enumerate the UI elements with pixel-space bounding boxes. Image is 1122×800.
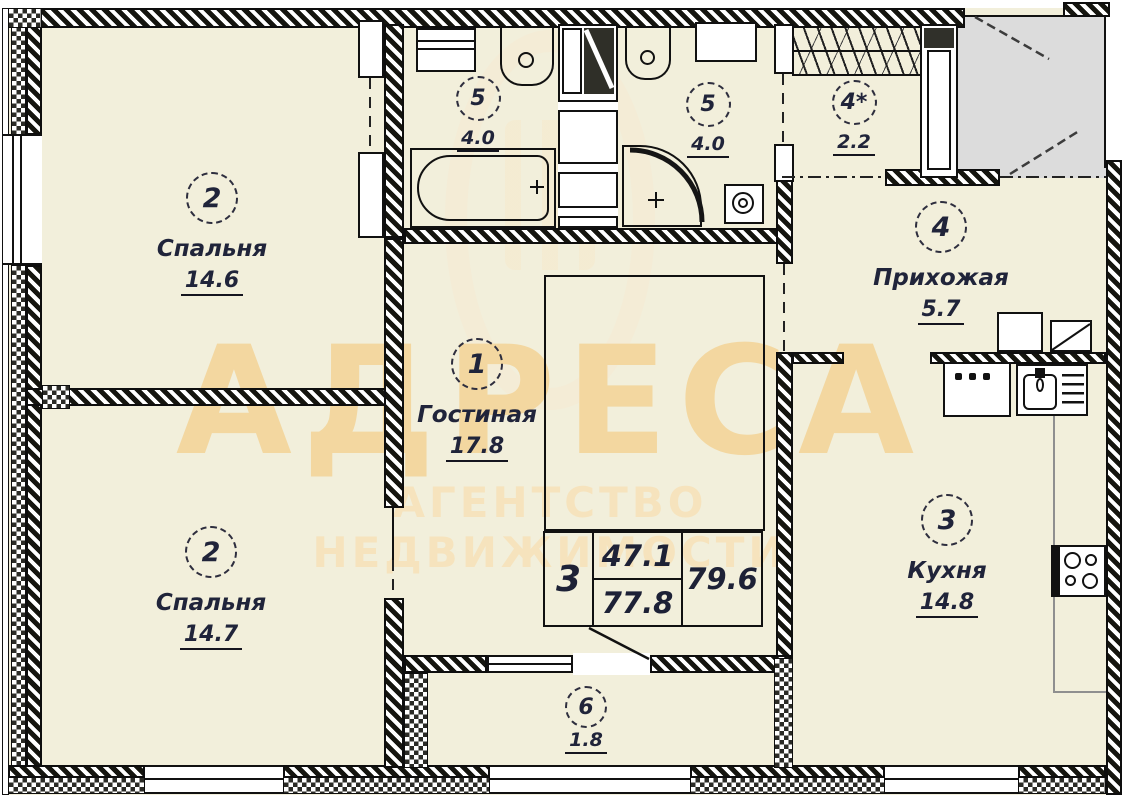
door-jamb-bedroom-top-1 [358,20,384,78]
wall-hall-living-upper [776,180,793,264]
room-area: 17.8 [446,434,508,462]
wall-balcony-right [774,658,793,768]
room-number-badge: 2 [186,172,238,224]
landing-boundary-dash [1000,176,1106,178]
label-bedroom-top: 2 Спальня 14.6 [132,172,292,296]
room-area: 4.0 [457,127,499,152]
wall-balcony-top-right [650,655,792,673]
label-bedroom-bottom: 2 Спальня 14.7 [131,526,291,650]
room-name: Гостиная [417,402,537,428]
entrance-door-header [924,28,954,48]
room-area: 14.6 [181,268,243,296]
shaft-band-2 [558,162,618,174]
bathtub-icon [410,148,556,228]
window-left-sill-bottom [2,263,42,265]
stamp-rooms-count: 3 [545,533,594,625]
floor-plan: АДРЕСА АГЕНТСТВО НЕДВИЖИМОСТИ [0,0,1122,800]
wall-top-right-stub [1063,2,1110,17]
shaft-band-3 [558,206,618,218]
room-number-badge: 1 [451,338,503,390]
label-bathroom-left: 5 4.0 [398,76,558,152]
stamp-apartment-area: 77.8 [594,580,681,625]
wall-bottom-ins1 [8,777,145,794]
counter-edge-horizontal [1053,691,1106,693]
door-jamb-bathroom-right-1 [774,24,794,74]
opening-living-hallway [783,264,785,352]
room-number-badge: 6 [565,686,607,728]
balcony-door-gap [573,653,650,675]
wall-balcony-top-left [404,655,487,673]
closet-shelf-line [792,50,922,52]
wall-left-bottom [26,265,42,792]
window-left-line-2 [20,135,22,265]
wall-living-kitchen [776,352,793,658]
hob-icon [1051,545,1106,597]
window-left-bedroom [4,135,42,265]
door-opening-bedroom-bottom [392,560,394,598]
duct-shaft [558,24,618,228]
stove-icon [943,362,1011,417]
room-name: Прихожая [873,265,1009,291]
label-hallway: 4 Прихожая 5.7 [861,201,1021,325]
room-area: 4.0 [687,133,729,158]
wall-bottom-ins4 [1018,777,1106,794]
wall-junction-block [42,385,70,409]
landing-right-line [1104,16,1106,168]
room-number-badge: 3 [921,494,973,546]
living-room-inner-rect [544,275,765,531]
label-kitchen: 3 Кухня 14.8 [867,494,1027,618]
window-kitchen-line [885,778,1018,780]
door-jamb-bedroom-top-2 [358,152,384,238]
bath-cabinet-icon [695,22,757,62]
window-left-line-1 [12,135,14,265]
wall-left-outer-line [2,8,9,795]
room-number-badge: 5 [686,82,731,127]
washer-right-icon [724,184,764,224]
wall-bottom-ins3 [690,777,885,794]
wardrobe-boundary-dash [782,176,888,178]
stamp-living-area: 47.1 [594,533,681,580]
room-number-badge: 2 [185,526,237,578]
kitchen-sink-icon [1016,364,1088,416]
window-balcony-line [490,778,690,780]
wall-living-left-lower [384,598,404,768]
door-opening-bedroom-top [369,78,371,152]
wall-top-corner [8,8,42,28]
wall-balcony-left [404,673,428,768]
room-area: 5.7 [918,297,965,325]
room-area: 2.2 [833,131,875,156]
toilet-right-icon [625,26,671,80]
shaft-dark-wedge [584,28,614,94]
wall-left-insulation-bottom [11,265,26,792]
wall-right [1106,160,1122,795]
hall-cabinet-2 [1050,320,1092,352]
window-bottom-bedroom-line [145,778,283,780]
stamp-total-area: 79.6 [683,533,761,625]
room-name: Спальня [157,236,267,262]
door-line-bedroom-bottom [392,508,394,560]
label-balcony: 6 1.8 [506,686,666,754]
room-area: 14.8 [916,590,978,618]
room-area: 1.8 [565,729,607,754]
wall-bottom-ins2 [283,777,490,794]
wall-under-bathrooms [404,228,778,244]
wall-top [8,8,965,28]
entrance-landing [953,17,1106,178]
room-number-badge: 4 [915,201,967,253]
wall-between-bedrooms [26,388,390,406]
washing-machine-icon [416,28,476,72]
shaft-box [562,28,582,94]
label-living: 1 Гостиная 17.8 [392,338,562,462]
room-name: Спальня [156,590,266,616]
room-name: Кухня [907,558,986,584]
label-bathroom-right: 5 4.0 [628,82,788,158]
wall-kitchen-hall-stub [792,352,844,364]
label-wardrobe: 4* 2.2 [774,80,934,156]
room-area: 14.7 [180,622,242,650]
room-number-badge: 5 [456,76,501,121]
shaft-band-1 [558,100,618,112]
room-number-badge: 4* [832,80,877,125]
balcony-window-line [487,663,573,665]
window-left-sill-top [2,134,42,136]
apartment-stamp-table: 3 47.1 77.8 79.6 [543,531,763,627]
